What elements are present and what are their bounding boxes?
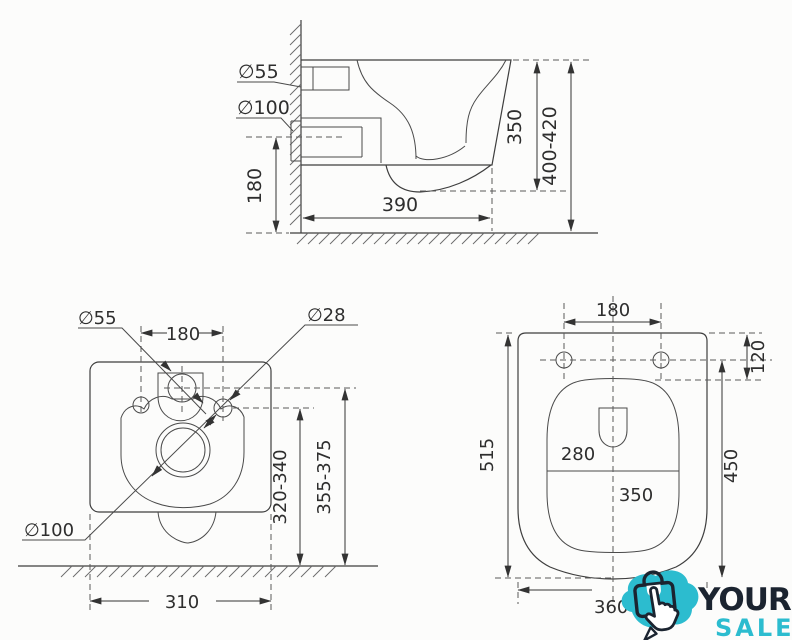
top-view-drawing: 180 515 120 450 360 280 350	[477, 296, 772, 618]
side-view-drawing: ∅55 ∅100 180 390 350 400-420	[236, 20, 598, 244]
wall-hatching	[290, 24, 301, 225]
drawing-sheet: ∅55 ∅100 180 390 350 400-420	[0, 0, 792, 640]
ground-hatching	[61, 566, 336, 577]
dim-label-hole-spacing: 180	[166, 324, 200, 345]
outlet-hole-outer	[156, 423, 210, 477]
leader-arrow	[152, 466, 161, 476]
dim-label-inlet-axis-height: 355-375	[314, 439, 335, 514]
dim-label-bowl-width: 280	[561, 444, 595, 465]
technical-drawing-page: ∅55 ∅100 180 390 350 400-420	[0, 0, 792, 640]
floor-hatching	[297, 233, 539, 244]
inlet-pipe	[301, 67, 349, 90]
dim-label-bowl-axis-length: 450	[721, 449, 742, 483]
logo-text-sale: SALE	[715, 614, 792, 640]
toilet-side-outline	[301, 60, 511, 165]
dim-label-install-height: 400-420	[539, 106, 561, 185]
outlet-leader	[236, 118, 293, 131]
outlet-hole-inner	[161, 428, 205, 472]
leader-arrow	[164, 364, 171, 371]
dim-label-body-height: 350	[504, 109, 526, 145]
dim-label-rear-inlet: ∅55	[78, 308, 117, 329]
dim-label-total-length: 515	[477, 438, 498, 472]
bowl-sump-curve	[416, 146, 465, 160]
bowl-inner-rear-curve	[466, 60, 506, 143]
rear-bottom-bump	[158, 512, 216, 543]
dim-label-body-width: 310	[165, 592, 199, 613]
dim-label-bowl-length: 350	[619, 485, 653, 506]
outlet-pipe	[291, 118, 381, 163]
bowl-inner-front-curve	[357, 60, 416, 159]
dim-label-depth: 390	[382, 194, 418, 216]
dim-label-rear-outlet: ∅100	[24, 520, 74, 541]
bowl-underside-curve	[386, 165, 491, 192]
rear-view-drawing: ∅55 ∅28 ∅100 180 320-340 355-375 310	[18, 305, 378, 613]
dim-label-hole-diameter: ∅28	[307, 305, 346, 326]
dim-label-inlet-diameter: ∅55	[238, 61, 279, 83]
leader-arrow	[230, 391, 239, 400]
dim-label-outlet-axis-height: 320-340	[270, 449, 291, 524]
dim-label-hinge-spacing: 180	[596, 300, 630, 321]
dim-label-hinge-offset: 120	[748, 340, 769, 374]
leader-arrow	[204, 419, 213, 428]
dim-label-outlet-diameter: ∅100	[237, 97, 290, 119]
yoursale-logo: YOUR SALE	[622, 570, 792, 640]
logo-text-your: YOUR	[697, 582, 792, 618]
dim-label-outlet-height: 180	[244, 168, 266, 204]
